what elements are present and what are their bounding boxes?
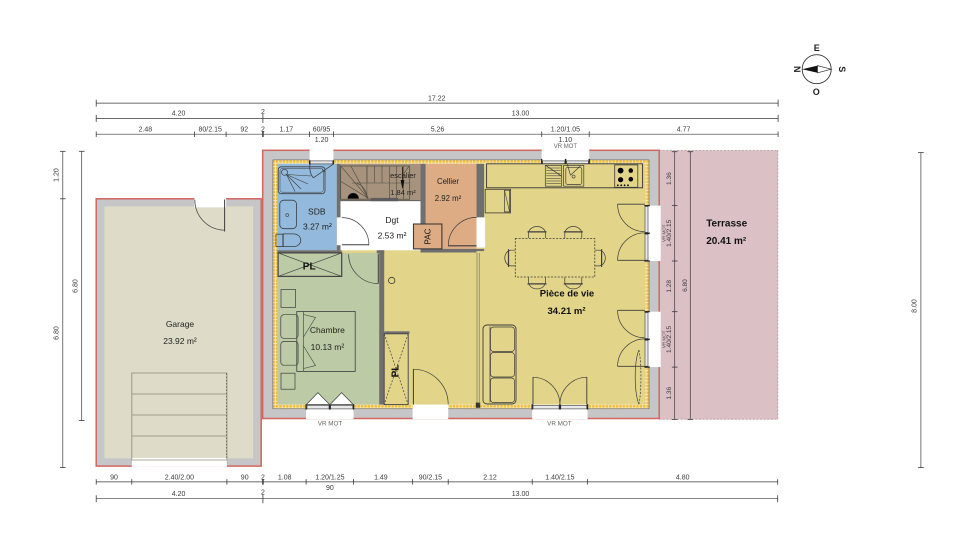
- svg-text:Garage: Garage: [166, 319, 195, 329]
- svg-text:O: O: [813, 87, 820, 97]
- svg-text:1.40/2.15: 1.40/2.15: [666, 325, 673, 352]
- svg-text:Cellier: Cellier: [437, 177, 459, 186]
- svg-text:2.12: 2.12: [483, 474, 497, 481]
- svg-text:2.53 m²: 2.53 m²: [378, 231, 407, 241]
- svg-text:E: E: [814, 43, 820, 53]
- svg-text:2.92 m²: 2.92 m²: [435, 194, 462, 203]
- svg-text:2.48: 2.48: [138, 127, 152, 134]
- svg-text:VR MOT: VR MOT: [554, 144, 578, 150]
- svg-text:2: 2: [261, 490, 265, 497]
- svg-text:10.13 m²: 10.13 m²: [311, 342, 345, 352]
- svg-text:1.36: 1.36: [666, 386, 673, 399]
- svg-text:Pièce de vie: Pièce de vie: [540, 289, 594, 300]
- svg-text:2: 2: [261, 109, 265, 116]
- svg-text:2.40/2.00: 2.40/2.00: [165, 474, 194, 481]
- svg-text:1.20: 1.20: [54, 168, 61, 182]
- svg-text:80/2.15: 80/2.15: [199, 127, 222, 134]
- svg-text:3.27 m²: 3.27 m²: [303, 222, 332, 232]
- svg-text:13.00: 13.00: [512, 491, 530, 498]
- svg-text:VR MOT: VR MOT: [661, 330, 666, 348]
- svg-text:13.00: 13.00: [512, 111, 530, 118]
- svg-text:60/95: 60/95: [313, 127, 331, 134]
- svg-text:SDB: SDB: [308, 207, 326, 217]
- svg-text:2: 2: [261, 474, 265, 481]
- svg-text:1.84 m²: 1.84 m²: [390, 188, 416, 197]
- svg-text:Chambre: Chambre: [310, 325, 345, 335]
- svg-text:PL: PL: [303, 262, 316, 273]
- svg-text:4.80: 4.80: [676, 474, 690, 481]
- svg-text:4.20: 4.20: [172, 111, 186, 118]
- svg-text:VR MOT: VR MOT: [318, 421, 343, 428]
- svg-text:20.41 m²: 20.41 m²: [706, 236, 747, 247]
- svg-text:S: S: [837, 66, 847, 72]
- svg-text:1.20: 1.20: [315, 137, 329, 144]
- svg-text:6.80: 6.80: [72, 279, 79, 293]
- svg-text:34.21 m²: 34.21 m²: [547, 306, 585, 317]
- svg-text:1.08: 1.08: [278, 474, 292, 481]
- svg-text:Dgt: Dgt: [385, 215, 399, 225]
- svg-text:92: 92: [240, 127, 248, 134]
- svg-text:VR MOT: VR MOT: [661, 224, 666, 242]
- svg-text:1.36: 1.36: [666, 172, 673, 185]
- svg-text:Terrasse: Terrasse: [706, 219, 747, 230]
- svg-text:1.20/1.05: 1.20/1.05: [551, 127, 580, 134]
- svg-text:1.40/2.15: 1.40/2.15: [545, 474, 574, 481]
- svg-text:90/2.15: 90/2.15: [419, 474, 442, 481]
- svg-text:5.26: 5.26: [431, 127, 445, 134]
- svg-text:1.17: 1.17: [280, 127, 294, 134]
- svg-text:PAC: PAC: [424, 228, 433, 244]
- svg-text:6.80: 6.80: [54, 326, 61, 340]
- svg-text:8.00: 8.00: [911, 299, 918, 313]
- svg-text:4.20: 4.20: [172, 491, 186, 498]
- svg-text:17.22: 17.22: [428, 95, 446, 102]
- svg-text:1.20/1.25: 1.20/1.25: [315, 474, 344, 481]
- svg-text:escalier: escalier: [390, 171, 416, 180]
- svg-text:1.40/2.15: 1.40/2.15: [666, 219, 673, 246]
- svg-text:6.80: 6.80: [682, 279, 689, 292]
- svg-text:1.10: 1.10: [559, 137, 573, 144]
- svg-text:4.77: 4.77: [677, 127, 691, 134]
- svg-text:90: 90: [241, 474, 249, 481]
- svg-text:90: 90: [110, 474, 118, 481]
- svg-text:N: N: [792, 66, 802, 73]
- svg-text:PL: PL: [391, 365, 402, 378]
- svg-text:2: 2: [261, 127, 265, 134]
- svg-text:23.92 m²: 23.92 m²: [163, 336, 197, 346]
- svg-text:90: 90: [326, 485, 334, 492]
- svg-text:1.49: 1.49: [374, 474, 388, 481]
- svg-text:VR MOT: VR MOT: [547, 421, 572, 428]
- svg-text:1.28: 1.28: [666, 280, 673, 293]
